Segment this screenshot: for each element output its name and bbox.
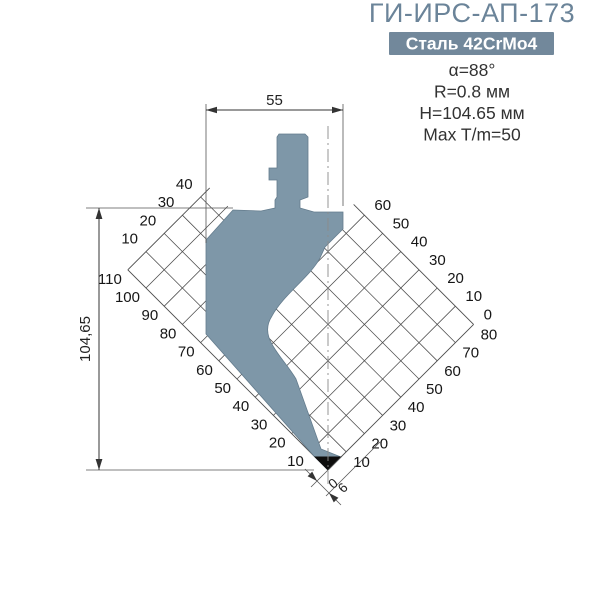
tool-body <box>206 134 343 470</box>
page-title: ГИ-ИРС-АП-173 <box>369 0 575 28</box>
tool-diagram: 1020304050607080901001101020304050607080… <box>0 0 600 600</box>
scale-label: 30 <box>158 194 175 211</box>
scale-label: 10 <box>465 288 482 305</box>
height-dimension-label: 104,65 <box>77 316 94 362</box>
spec-angle: α=88° <box>449 60 496 80</box>
scale-label: 80 <box>481 326 498 343</box>
scale-label: 20 <box>269 435 286 452</box>
material-badge: Сталь 42CrMo4 <box>389 32 554 55</box>
scale-label: 30 <box>251 416 268 433</box>
width-dimension-label: 55 <box>266 92 283 109</box>
scale-label: 60 <box>196 362 213 379</box>
spec-height: H=104.65 мм <box>419 103 524 123</box>
scale-label: 40 <box>233 398 250 415</box>
scale-label: 20 <box>140 212 157 229</box>
scale-label: 70 <box>462 345 479 362</box>
scale-label: 20 <box>371 436 388 453</box>
scale-label: 30 <box>429 252 446 269</box>
scale-label: 60 <box>444 363 461 380</box>
material-badge-label: Сталь 42CrMo4 <box>406 34 538 54</box>
scale-label: 0 <box>484 306 492 323</box>
scale-label: 40 <box>176 176 193 193</box>
scale-label: 10 <box>121 231 138 248</box>
scale-label: 50 <box>214 380 231 397</box>
scale-label: 10 <box>353 454 370 471</box>
scale-label: 50 <box>393 215 410 232</box>
scale-label: 70 <box>178 344 195 361</box>
spec-max-tonnage: Max T/m=50 <box>423 125 521 145</box>
scale-label: 80 <box>160 325 177 342</box>
scale-label: 100 <box>115 289 140 306</box>
scale-label: 50 <box>426 381 443 398</box>
scale-label: 40 <box>411 234 428 251</box>
scale-label: 10 <box>287 453 304 470</box>
spec-radius: R=0.8 мм <box>434 82 510 102</box>
scale-label: 110 <box>98 271 122 288</box>
catalog-page: 1020304050607080901001101020304050607080… <box>0 0 600 600</box>
scale-label: 20 <box>447 270 464 287</box>
scale-label: 40 <box>408 399 425 416</box>
scale-label: 30 <box>390 417 407 434</box>
scale-label: 90 <box>142 307 159 324</box>
scale-label: 60 <box>374 197 391 214</box>
